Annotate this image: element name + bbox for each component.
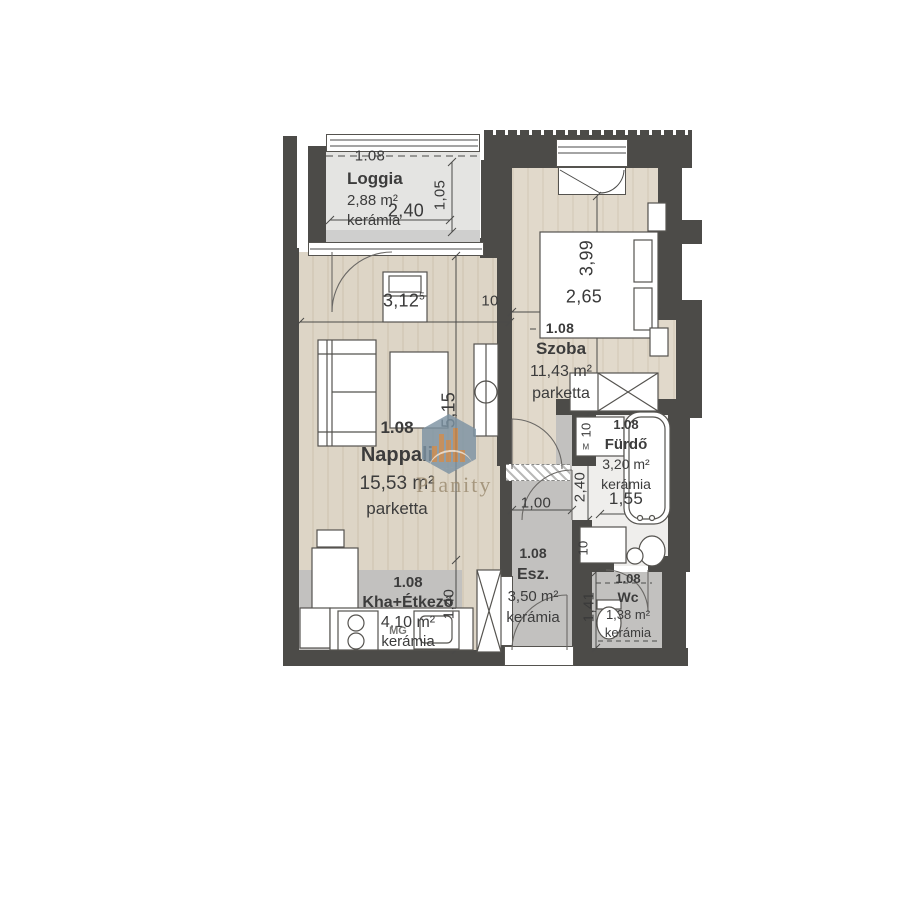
dim-nappali-width-value: 3,12 [383, 291, 419, 311]
loggia-name: Loggia [347, 168, 403, 191]
kha-level: 1.08 [362, 574, 453, 593]
szoba-window-swing [600, 170, 624, 193]
dishwasher-label: MG [389, 625, 407, 637]
fridge [300, 608, 330, 648]
dim-nappali-width-sup: 5 [419, 292, 425, 303]
kha-area: 4,10 m² [362, 613, 453, 633]
wc-floor: kerámia [605, 624, 651, 642]
label-szoba: Szoba 11,43 m² parketta [530, 338, 592, 404]
dim-wall-thickness: 10 [481, 293, 498, 310]
dim-esz-width: 1,00 [521, 495, 551, 512]
furdo-floor: kerámia [601, 475, 651, 495]
watermark: Planity [408, 410, 518, 502]
bathtub-tap-2 [650, 516, 655, 521]
wc-area: 1,38 m² [605, 606, 651, 624]
szoba-window-opening-line [560, 170, 600, 193]
label-loggia: Loggia 2,88 m² kerámia [347, 168, 403, 231]
dim-szoba-axis: 1.08 [546, 320, 574, 336]
esz-level: 1.08 [506, 544, 559, 564]
kha-name: Kha+Étkező [362, 593, 453, 613]
szoba-area: 11,43 m² [530, 361, 592, 383]
label-furdo: 1.08 Fürdő 3,20 m² kerámia [601, 416, 651, 494]
loggia-area: 2,88 m² [347, 191, 403, 211]
washbasin-tap [627, 548, 643, 564]
furdo-area: 3,20 m² [601, 455, 651, 475]
dim-szoba-width: 2,65 [566, 287, 602, 308]
dining-chair-top [317, 530, 344, 547]
furdo-name: Fürdő [601, 434, 651, 455]
label-wc: 1.08 Wc 1,38 m² kerámia [605, 570, 651, 642]
label-kha: 1.08 Kha+Étkező 4,10 m² kerámia [362, 574, 453, 652]
dining-table [312, 548, 358, 614]
esz-name: Esz. [506, 564, 559, 586]
loggia-floor: kerámia [347, 211, 403, 231]
wc-name: Wc [605, 588, 651, 607]
washbasin [639, 536, 665, 566]
szoba-door-arc [512, 419, 562, 469]
watermark-brand: Planity [416, 472, 492, 498]
bathtub-tap-1 [638, 516, 643, 521]
dim-wc-height: 1,41 [581, 592, 598, 622]
pillow-1 [634, 240, 652, 282]
esz-floor: kerámia [506, 607, 559, 628]
furdo-level: 1.08 [601, 416, 651, 434]
dim-szoba-height: 3,99 [577, 240, 598, 276]
floorplan-page: { "watermark": { "brand": "Planity" }, "… [0, 0, 900, 918]
dim-washer-mark: M [583, 443, 590, 452]
wc-level: 1.08 [605, 570, 651, 588]
dim-furdo-height: 2,40 [572, 472, 589, 502]
dim-washer-width: 10 [579, 422, 594, 437]
szoba-floor: parketta [530, 383, 592, 405]
kha-floor: kerámia [362, 633, 453, 652]
dim-niche-width: 10 [576, 540, 591, 555]
szoba-name: Szoba [530, 338, 592, 361]
esz-area: 3,50 m² [506, 586, 559, 607]
dim-loggia-depth: 1,05 [432, 180, 449, 210]
nightstand-1 [648, 203, 666, 231]
pillow-2 [634, 288, 652, 330]
dim-nappali-width: 3,125 [383, 291, 425, 312]
nightstand-2 [650, 328, 668, 356]
dim-loggia-axis: 1.08 [355, 148, 385, 165]
label-esz: 1.08 Esz. 3,50 m² kerámia [506, 544, 559, 628]
